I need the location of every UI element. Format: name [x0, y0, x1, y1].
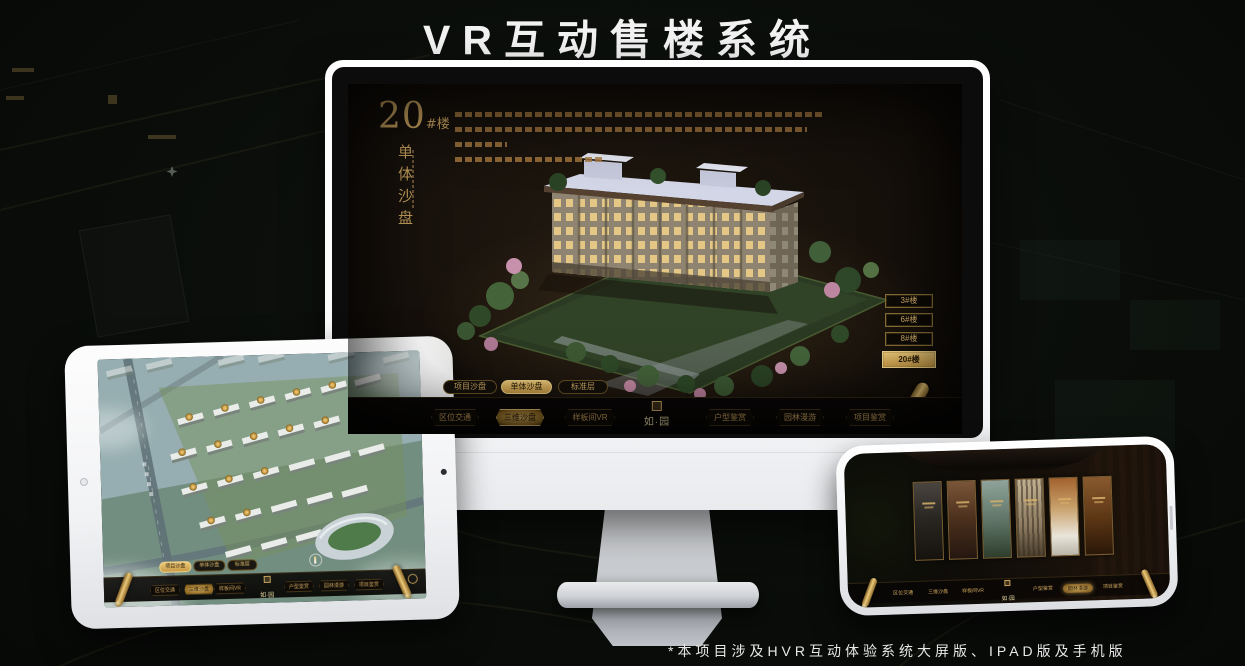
nav-item-3d-sandbox[interactable]: 三维沙盘	[496, 409, 544, 426]
tablet-mode-tab-project-sandbox[interactable]: 项目沙盘	[159, 561, 191, 573]
scroll-ornament-icon[interactable]	[861, 577, 878, 608]
gallery-card-1[interactable]	[913, 481, 944, 561]
mode-tab-project-sandbox[interactable]: 项目沙盘	[443, 380, 497, 394]
tablet-camera-icon	[80, 478, 88, 486]
nav-item-location-traffic[interactable]: 区位交通	[431, 409, 479, 426]
building-button-8[interactable]: 8#楼	[885, 332, 933, 346]
gallery-card-3[interactable]	[981, 479, 1012, 559]
monitor-stand-neck	[592, 508, 722, 646]
tablet-nav-garden-tour[interactable]: 园林漫游	[319, 580, 349, 592]
building-number: 20	[378, 96, 426, 137]
model-building	[538, 153, 804, 314]
mode-tab-single-sandbox[interactable]: 单体沙盘	[501, 380, 552, 394]
page-title: VR互动售楼系统	[0, 6, 1245, 66]
tablet-nav-3d-sandbox[interactable]: 三维沙盘	[184, 583, 214, 595]
promo-poster: VR互动售楼系统 20#楼 单体沙盘	[0, 0, 1245, 666]
building-button-20[interactable]: 20#楼	[882, 351, 936, 368]
phone-side-button[interactable]	[1169, 506, 1173, 530]
phone-screen[interactable]: 区位交通 三维沙盘 样板间VR 如·园 户型鉴赏 园林漫游 项目鉴赏	[844, 444, 1171, 608]
tablet-nav-location-traffic[interactable]: 区位交通	[150, 584, 180, 596]
logo-seal-icon	[1005, 580, 1011, 586]
building-headline: 20#楼	[378, 96, 450, 137]
building-number-suffix: #楼	[426, 117, 450, 132]
nav-item-project-gallery[interactable]: 项目鉴赏	[846, 409, 894, 426]
gallery-card-6[interactable]	[1082, 476, 1113, 556]
phone-nav-floorplan-gallery[interactable]: 户型鉴赏	[1033, 585, 1053, 593]
phone-nav-3d-sandbox[interactable]: 三维沙盘	[928, 588, 948, 596]
phone-nav-model-room-vr[interactable]: 样板间VR	[962, 587, 984, 595]
phone-device: 区位交通 三维沙盘 样板间VR 如·园 户型鉴赏 园林漫游 项目鉴赏	[835, 436, 1178, 617]
building-button-3[interactable]: 3#楼	[885, 294, 933, 308]
nav-item-floorplan-gallery[interactable]: 户型鉴赏	[706, 409, 754, 426]
building-selector: 3#楼 6#楼 8#楼 20#楼	[882, 294, 936, 373]
brand-logo[interactable]: 如·园	[644, 401, 670, 430]
scroll-ornament-icon[interactable]	[114, 572, 133, 607]
gallery-card-5[interactable]	[1049, 477, 1080, 557]
nav-ring-icon[interactable]	[408, 574, 418, 584]
monitor-bezel: 20#楼 单体沙盘	[332, 67, 983, 438]
monitor-stand-base	[557, 582, 759, 608]
tablet-nav-project-gallery[interactable]: 项目鉴赏	[354, 579, 384, 591]
gallery-card-4[interactable]	[1015, 478, 1046, 558]
footnote: *本项目涉及HVR互动体验系统大屏版、IPAD版及手机版	[668, 641, 1127, 661]
phone-nav-project-gallery[interactable]: 项目鉴赏	[1103, 582, 1123, 590]
logo-seal-icon	[652, 401, 662, 411]
main-navbar: 区位交通 三维沙盘 样板间VR 如·园 户型鉴赏 园林漫游 项目鉴赏	[348, 397, 962, 434]
mode-tab-standard-floor[interactable]: 标准层	[558, 380, 608, 394]
tablet-brand-logo[interactable]: 如·园	[260, 576, 275, 602]
gallery-card-2[interactable]	[947, 480, 978, 560]
scene-gallery	[913, 476, 1114, 561]
tablet-nav-model-room-vr[interactable]: 样板间VR	[214, 582, 246, 594]
phone-nav-location-traffic[interactable]: 区位交通	[893, 589, 913, 597]
tablet-nav-floorplan-gallery[interactable]: 户型鉴赏	[284, 581, 314, 593]
logo-seal-icon	[263, 576, 270, 583]
phone-brand-logo[interactable]: 如·园	[1001, 580, 1015, 605]
nav-item-model-room-vr[interactable]: 样板间VR	[564, 409, 615, 426]
scroll-ornament-icon[interactable]	[1140, 568, 1159, 598]
monitor-screen: 20#楼 单体沙盘	[348, 84, 962, 434]
tablet-home-button[interactable]	[441, 469, 447, 475]
nav-item-garden-tour[interactable]: 园林漫游	[776, 409, 824, 426]
tablet-mode-tab-single-sandbox[interactable]: 单体沙盘	[193, 560, 225, 572]
headline-english-decor	[412, 150, 414, 208]
building-button-6[interactable]: 6#楼	[885, 313, 933, 327]
description-text-lines	[455, 112, 835, 172]
tablet-mode-tab-standard-floor[interactable]: 标准层	[227, 559, 257, 571]
phone-nav-garden-tour[interactable]: 园林漫游	[1063, 583, 1093, 593]
